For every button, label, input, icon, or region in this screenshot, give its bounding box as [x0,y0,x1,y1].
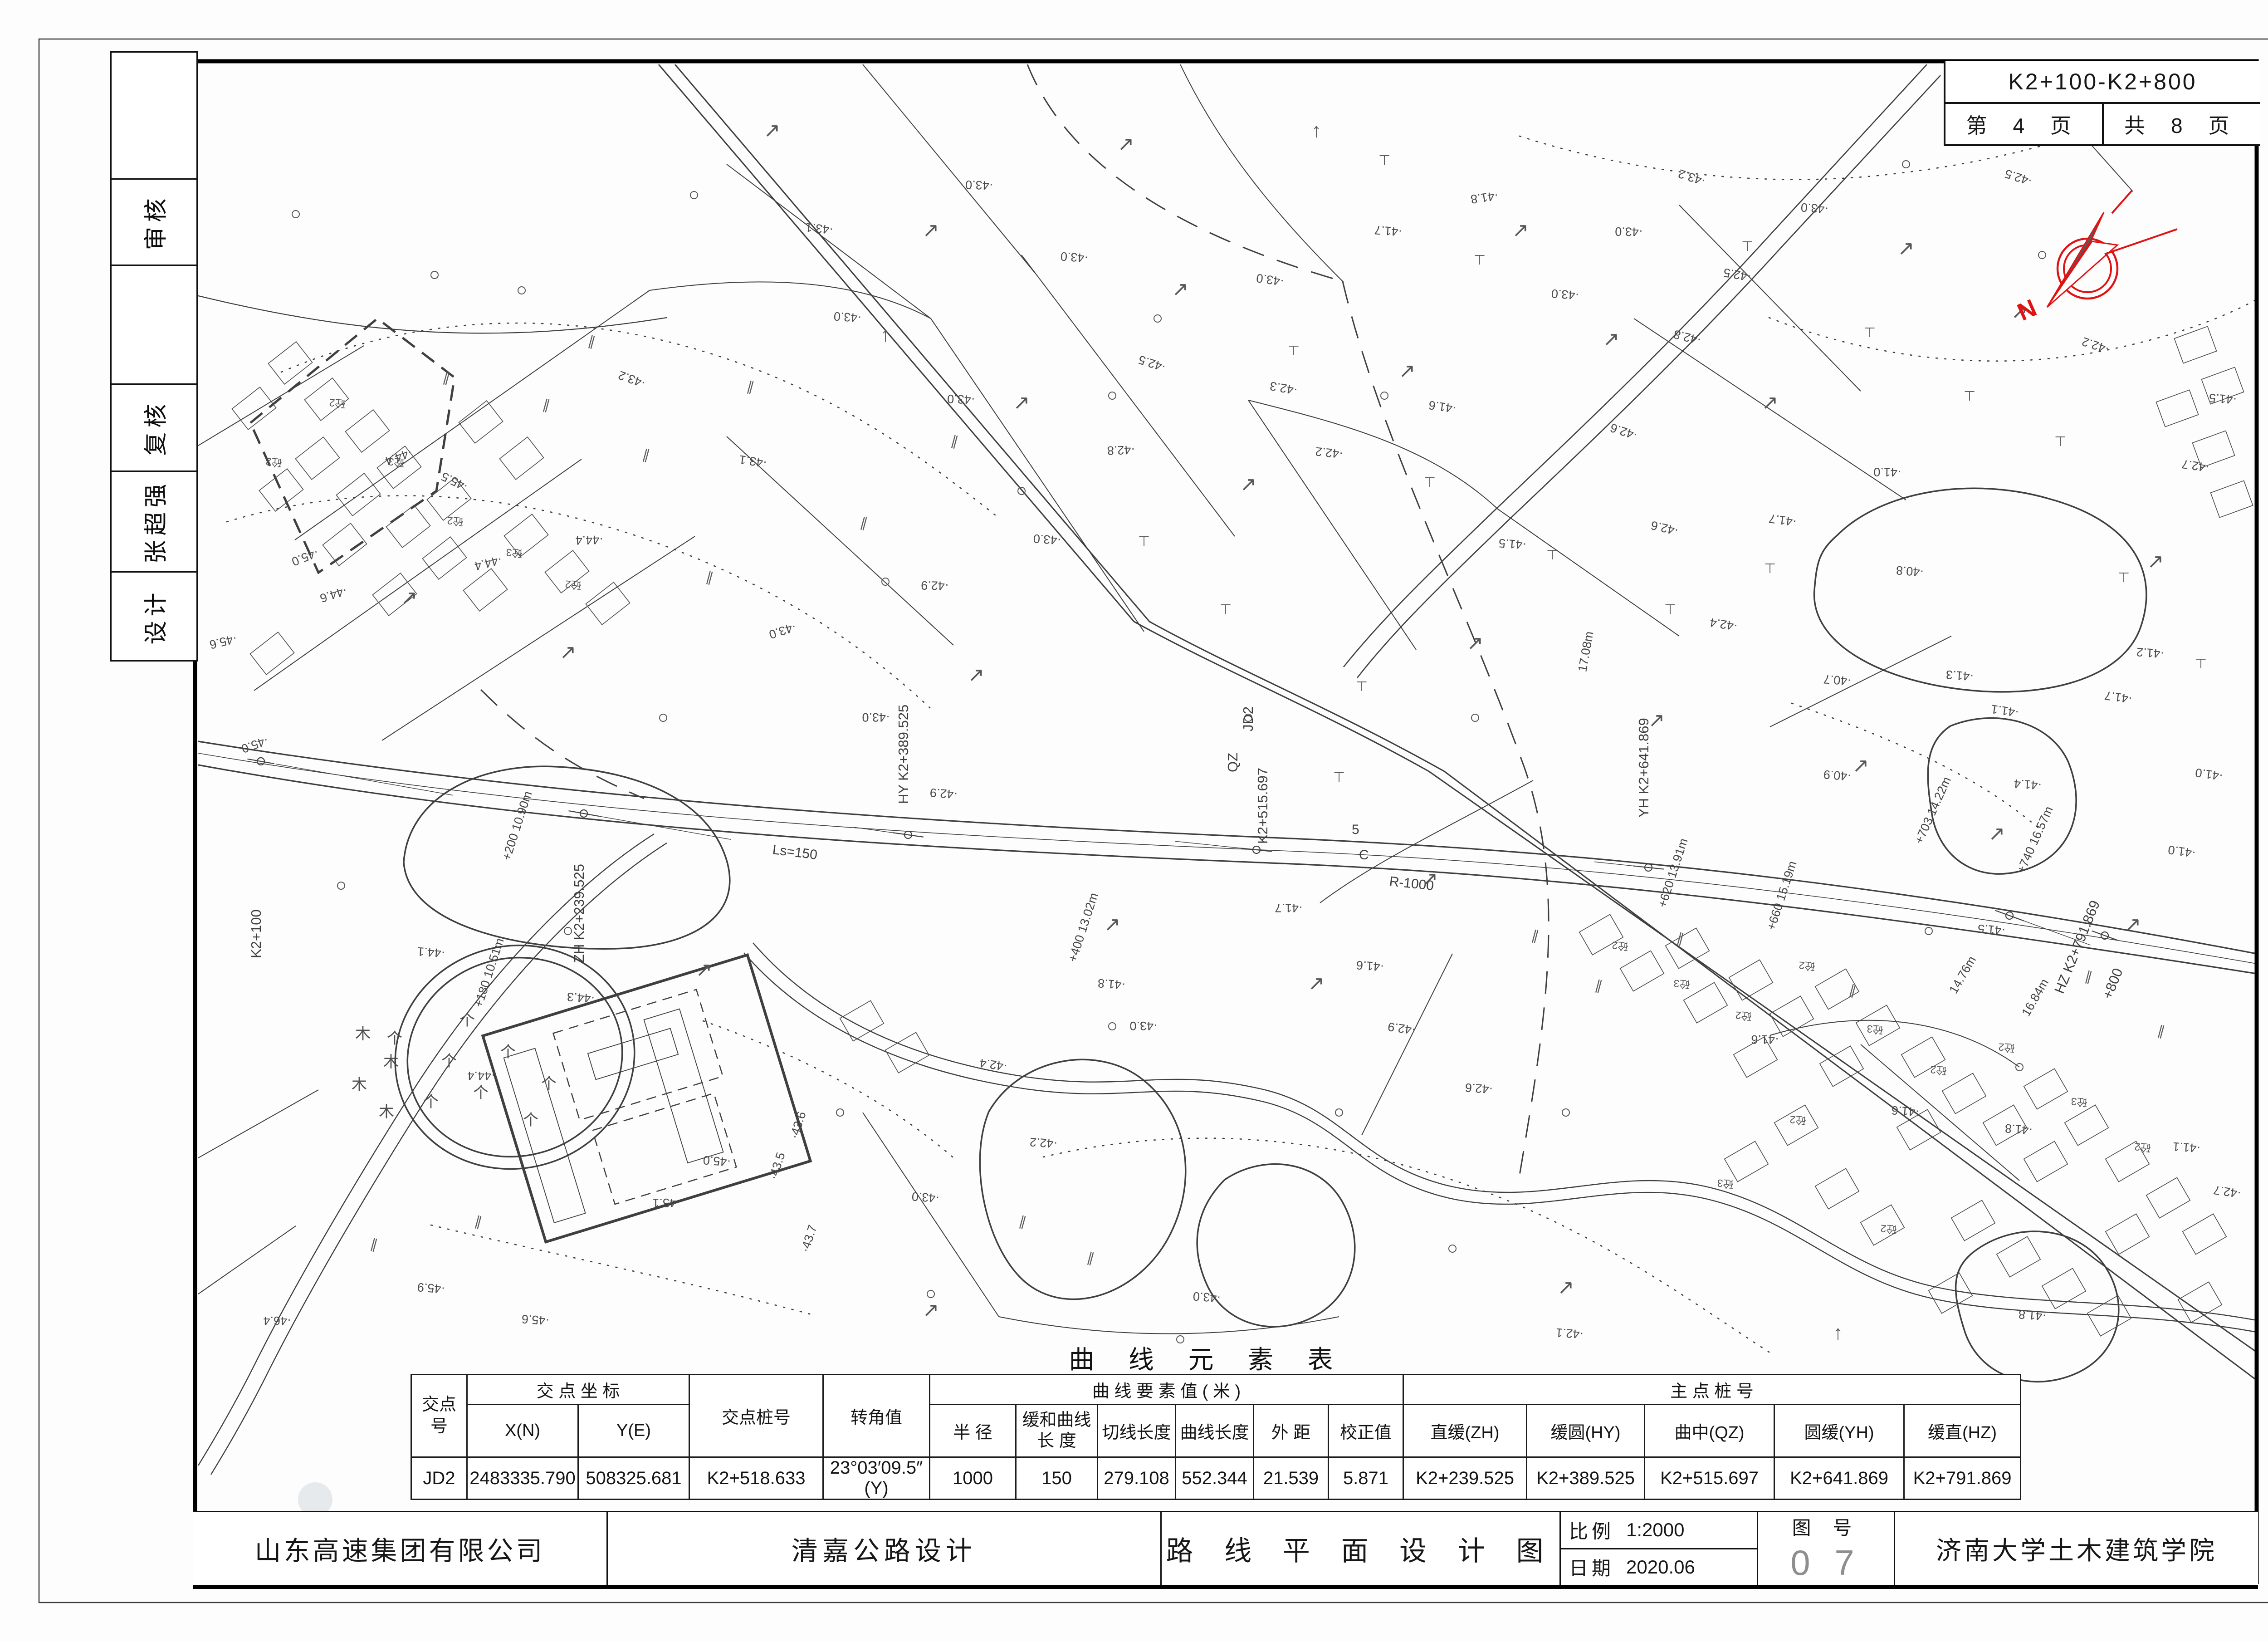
date-value: 2020.06 [1626,1556,1695,1578]
building [336,473,380,516]
direction-arrow-icon: ↗ [401,587,418,609]
grass-icon: ∥ [369,1236,379,1253]
building [2174,326,2216,363]
col-coords: 交 点 坐 标 [467,1375,689,1405]
page-total: 共 8 页 [2104,104,2260,144]
spot-elevation: ·42.7 [2181,457,2210,474]
strip-cell-sheji: 设计 [112,573,196,660]
spot-elevation: ·42.6 [1608,421,1639,442]
direction-arrow-icon: ↗ [1399,360,1416,382]
point-circle-icon [882,578,889,585]
wood-icon: 木 [379,1103,394,1121]
building [2106,1214,2150,1254]
spot-elevation: ·45.5 [439,470,470,494]
spot-elevation: ·41.0 [2195,765,2224,783]
spot-elevation: ·43.7 [798,1223,820,1254]
building-label: 砼2 [1612,940,1629,952]
point-circle-icon [292,211,299,218]
spot-elevation: ·45.6 [208,632,239,652]
spot-elevation: ·41.3 [1945,668,1974,683]
building [2146,1177,2190,1218]
building [2065,1105,2109,1145]
col-main-stakes: 主 点 桩 号 [1403,1375,2021,1405]
cell-angle: 23°03′09.5″(Y) [823,1457,930,1500]
cell-spiral: 150 [1016,1457,1098,1500]
col-xn: X(N) [467,1405,578,1457]
point-circle-icon [836,1109,844,1116]
spot-elevation: ·43.1 [738,452,768,470]
col-ye: Y(E) [578,1405,689,1457]
field-boundaries [198,64,2133,1334]
grass-icon: ∥ [1530,928,1540,944]
cell-zh: K2+239.525 [1403,1457,1527,1500]
title-block: 山东高速集团有限公司 清嘉公路设计 路 线 平 面 设 计 图 比例 1:200… [193,1511,2258,1589]
spot-elevation: ·44.3 [567,990,595,1005]
grass-icon: ∥ [641,447,651,463]
building-label: 砼2 [1998,1041,2015,1054]
building [840,1000,884,1041]
cell-radius: 1000 [930,1457,1016,1500]
tree-icon: 个 [423,1093,439,1111]
label-design: 设计 [137,588,171,644]
building [345,410,389,452]
point-circle-icon [337,882,345,889]
vegetation-icon: ⊥ [1664,601,1676,616]
spot-elevation: ·46.4 [263,1314,291,1328]
spot-elevation: ·41.2 [2136,645,2165,661]
drawing-sheet: ·43.1·43.0·43.0·43.2·44.4·45.0·44.6·45.6… [0,0,2268,1642]
strip-cell-fuhe: 复核 [112,385,196,472]
spot-elevation: ·45.6 [521,1312,550,1328]
scale-label: 比例 [1569,1516,1614,1544]
tree-icon: 个 [473,1084,489,1102]
point-circle-icon [1449,1245,1456,1252]
spot-elevation: ·41.8 [2004,1122,2033,1137]
tree-icon: 个 [387,1030,402,1047]
grass-icon: ∥ [949,433,960,450]
building-label: 砼2 [1735,1010,1752,1022]
vegetation-icon: ⊥ [2195,656,2207,671]
spot-elevation: ·41.6 [1891,1103,1920,1119]
building-label: 砼2 [1789,1114,1807,1127]
organization-name: 济南大学土木建筑学院 [1895,1512,2258,1585]
col-hy: 缓圆(HY) [1527,1405,1645,1457]
spot-elevation: ·40.8 [1896,564,1924,579]
col-jd-no: 交点号 [411,1375,467,1457]
direction-arrow-icon: ↗ [560,641,577,663]
building-label: 砼2 [1930,1064,1947,1077]
vegetation-icon: ⊥ [1220,601,1232,616]
building-label: 砼3 [2071,1096,2088,1108]
spot-elevation: ·40.9 [1823,768,1852,783]
vegetation-icon: ⊥ [1764,560,1776,575]
grass-icon: ∥ [541,397,552,413]
signature-strip: 审核 复核 张超强 设计 [110,51,198,662]
vegetation-icon: ⊥ [1288,343,1300,358]
building [422,537,466,579]
spot-elevation: ·42.5 [1137,353,1168,374]
vegetation-icon: ⊥ [1546,547,1558,562]
route-note: C [1359,848,1369,863]
station-label: HY K2+389.525 [895,705,911,804]
tree-icon: 个 [523,1112,538,1129]
direction-arrow-icon: ↗ [1512,219,1529,241]
grass-icon: ∥ [2083,969,2094,985]
col-curve-len: 曲线长度 [1176,1405,1254,1457]
spot-elevation: ·41.6 [1356,958,1384,974]
label-recheck: 复核 [137,399,171,456]
spot-elevation: ·43.0 [911,1190,940,1205]
tree-icon: 个 [441,1053,457,1070]
building [459,401,503,443]
vegetation-icon: ⊥ [1964,388,1975,403]
building [2210,480,2253,517]
spot-elevation: ·41.6 [1428,398,1457,415]
vegetation-icon: ⊥ [2118,569,2130,584]
vegetation-icon: ⊥ [1741,238,1753,253]
spot-elevation: ·43.0 [1129,1019,1158,1033]
strip-cell-shenhe: 审核 [112,180,196,266]
building [1815,1168,1859,1209]
grass-icon: ∥ [1675,931,1686,947]
spot-elevation: ·42.6 [1650,518,1680,538]
direction-arrow-icon: ↗ [1558,1276,1574,1299]
spot-elevation: ·44.4 [575,533,604,547]
grass-icon: ∥ [1085,1250,1096,1266]
grass-icon: ∥ [859,515,869,531]
spot-elevation: ·41.0 [2167,843,2197,860]
spot-elevation: ·41.5 [2209,391,2237,407]
spot-elevation: ·43.0 [1256,271,1285,288]
spot-elevation: ·42.5 [2003,167,2034,188]
building [232,387,276,430]
direction-arrow-icon: ↗ [1989,823,2005,845]
curve-table-title: 曲 线 元 素 表 [411,1339,2005,1376]
col-spiral-line2: 长 度 [1037,1431,1076,1451]
point-circle-icon [1335,1109,1343,1116]
spot-elevation: ·43.0 [767,620,798,642]
spot-elevation: ·43.0 [1551,287,1579,302]
spot-elevation: ·43.0 [1193,1289,1221,1305]
col-zh: 直缓(ZH) [1403,1405,1527,1457]
spot-elevation: ·41.7 [1275,901,1303,915]
ponds [404,488,2146,1382]
cell-correction: 5.871 [1329,1457,1403,1500]
building-label: 砼2 [565,578,582,591]
curve-table: 交点号 交 点 坐 标 交点桩号 转角值 曲 线 要 素 值 ( 米 ) 主 点… [411,1374,2021,1500]
building [1942,1073,1986,1113]
station-label: K2+515.697 [1255,768,1271,844]
building-label: 砼2 [329,397,346,410]
point-circle-icon [431,271,438,279]
scale-value: 1:2000 [1626,1519,1684,1541]
building [1725,1141,1769,1181]
culvert-label: +660 15.19m [1764,859,1799,932]
spot-elevation: ·42.2 [2080,334,2111,356]
point-circle-icon [690,191,698,199]
table-row: JD2 2483335.790 508325.681 K2+518.633 23… [411,1457,2021,1500]
spot-elevation: ·43.0 [862,711,890,724]
grass-icon: ∥ [587,333,597,350]
point-circle-icon [1109,392,1116,399]
project-name: 清嘉公路设计 [608,1512,1162,1585]
spot-elevation: ·44.4 [467,1069,495,1083]
station-label: QZ [1225,753,1241,772]
spot-elevation: ·41.8 [1097,976,1126,992]
scale-date-cell: 比例 1:2000 日期 2020.06 [1561,1512,1758,1585]
direction-arrow-icon: ↗ [923,1299,939,1321]
spot-elevation: ·44.6 [318,583,349,605]
direction-arrow-icon: ↗ [1422,868,1438,890]
col-angle: 转角值 [823,1375,930,1457]
spot-elevation: ·44.4 [473,553,503,573]
culvert-label: 17.08m [1575,630,1596,673]
north-compass-icon [2047,191,2177,307]
building-label: 砼2 [447,515,464,528]
label-designer-name: 张超强 [137,479,171,564]
figure-number-label: 图 号 [1758,1512,1894,1540]
direction-arrow-icon: ↑ [880,323,890,346]
point-circle-icon [564,927,572,935]
route-note: Ls=150 [772,842,818,863]
point-circle-icon [2038,251,2046,259]
vegetation-icon: ⊥ [1333,769,1345,784]
col-tangent: 切线长度 [1098,1405,1176,1457]
date-label: 日期 [1569,1553,1614,1581]
wood-icon: 木 [352,1076,367,1093]
figure-number-value: 0 7 [1758,1540,1894,1585]
road-b [1344,64,1941,678]
col-qz: 曲中(QZ) [1645,1405,1774,1457]
direction-arrow-icon: ↗ [1898,237,1915,260]
direction-arrow-icon: ↗ [1762,392,1779,414]
grass-icon: ∥ [745,379,756,395]
tree-icon: 个 [500,1044,516,1061]
spot-elevation: ·43.5 [766,1151,788,1181]
spot-elevation: ·42.1 [1555,1326,1584,1341]
cell-ye: 508325.681 [578,1457,689,1500]
col-hz: 缓直(HZ) [1904,1405,2021,1457]
spot-elevation: ·42.2 [1029,1135,1058,1151]
spot-elevation: ·43.0 [1615,225,1643,239]
point-circle-icon [927,1290,934,1298]
spot-elevation: ·41.4 [2014,777,2042,792]
building [1620,951,1664,991]
building [1929,1273,1973,1313]
building [2024,1069,2068,1109]
building [2024,1141,2068,1181]
building [250,632,294,675]
tree-icon: 个 [459,1012,475,1029]
building [386,505,430,548]
vegetation-icon: ⊥ [1424,474,1436,489]
date-row: 日期 2020.06 [1561,1549,1757,1585]
building-label: 砼3 [1867,1023,1884,1036]
strip-cell-blank-1 [112,53,196,180]
direction-arrow-icon: ↗ [1308,972,1325,995]
spot-elevation: ·43.0 [833,309,862,325]
direction-arrow-icon: ↗ [2147,550,2164,573]
building [2183,1214,2227,1254]
cell-yh: K2+641.869 [1774,1457,1904,1500]
spot-elevation: ·43.0 [1800,201,1829,216]
building [259,469,303,511]
building-label: 砼3 [1673,978,1691,990]
map-labels: ·43.1·43.0·43.0·43.2·44.4·45.0·44.6·45.6… [208,107,2242,1344]
point-circle-icon [1109,1023,1116,1030]
spot-elevation: ·45.1 [652,1196,680,1210]
col-external: 外 距 [1254,1405,1329,1457]
building [1729,960,1773,1000]
cell-hz: K2+791.869 [1904,1457,2021,1500]
spot-elevation: ·45.9 [417,1280,445,1296]
spot-elevation: ·45.0 [703,1153,731,1169]
station-label: JD2 [1240,706,1256,731]
building [1997,1236,2041,1277]
spot-elevation: ·42.9 [1387,1020,1417,1037]
cell-qz: K2+515.697 [1645,1457,1774,1500]
drawing-title: 路 线 平 面 设 计 图 [1162,1512,1561,1585]
spot-elevation: ·41.7 [2104,688,2133,706]
vegetation-icon: ⊥ [2054,433,2066,448]
grass-icon: ∥ [704,569,715,586]
culvert-label: +703 14.22m [1912,775,1954,846]
direction-arrow-icon: ↗ [696,959,713,981]
point-circle-icon [660,714,667,721]
col-spiral: 缓和曲线 长 度 [1016,1405,1098,1457]
culvert-label: +620 13.91m [1655,837,1690,909]
direction-arrow-icon: ↗ [1603,328,1620,350]
station-label: K2+100 [248,909,264,958]
point-circle-icon [1471,714,1479,721]
wood-icon: 木 [355,1025,371,1043]
direction-arrow-icon: ↗ [764,119,781,142]
direction-arrow-icon: ↗ [923,219,939,241]
direction-arrow-icon: ↗ [1172,278,1189,300]
grass-icon: ∥ [1848,982,1858,999]
vegetation-icon: ⊥ [1138,533,1150,548]
curve-elements-table: 交点号 交 点 坐 标 交点桩号 转角值 曲 线 要 素 值 ( 米 ) 主 点… [411,1374,2021,1500]
direction-arrow-icon: ↗ [1467,632,1484,654]
point-circle-icon [1381,392,1388,399]
cell-tangent: 279.108 [1098,1457,1176,1500]
spot-elevation: ·41.1 [1990,702,2020,719]
cell-curve-len: 552.344 [1176,1457,1254,1500]
grass-icon: ∥ [1593,978,1604,994]
building-label: 砼3 [506,547,523,559]
figure-number-cell: 图 号 0 7 [1758,1512,1895,1585]
spot-elevation: ·42.8 [1107,443,1135,457]
direction-arrow-icon: ↗ [968,664,985,686]
culvert-label: +740 16.57m [2014,804,2056,876]
vegetation-icon: ⊥ [1474,252,1486,267]
spot-elevation: ·44.1 [417,945,445,960]
vegetation-icon: ⊥ [1864,324,1876,339]
building-label: 砼2 [1880,1223,1897,1235]
spot-elevation: ·41.5 [1498,536,1527,552]
spot-elevation: ·42.9 [921,578,949,593]
culvert-label: 14.76m [1946,954,1979,996]
spot-elevation: ·42.9 [929,786,958,801]
spot-elevation: ·41.5 [1977,922,2006,937]
building [1951,1200,1995,1240]
spot-elevation: ·41.1 [2172,1140,2201,1155]
building-label: 砼2 [265,456,283,469]
spot-elevation: ·42.4 [1709,615,1738,633]
direction-arrow-icon: ↗ [1013,392,1030,414]
page-current: 第 4 页 [1945,104,2104,144]
spot-elevation: ·42.6 [1465,1081,1493,1096]
vegetation-icon: ⊥ [1378,152,1390,167]
point-circle-icon [1018,487,1025,495]
building-label: 砼2 [2134,1141,2151,1154]
point-circle-icon [518,287,525,294]
spot-elevation: ·43.6 [787,1110,809,1141]
spot-elevation: ·41.6 [1751,1033,1779,1046]
tree-icon: 个 [541,1075,557,1093]
grass-icon: ∥ [2156,1023,2166,1039]
spot-elevation: ·43.2 [1677,167,1707,188]
cell-hy: K2+389.525 [1527,1457,1645,1500]
col-stake: 交点桩号 [689,1375,823,1457]
point-circle-icon [1562,1109,1569,1116]
grass-icon: ∥ [473,1214,484,1230]
map-symbols [292,161,2046,1343]
cell-xn: 2483335.790 [467,1457,578,1500]
strip-cell-name: 张超强 [112,472,196,573]
direction-arrow-icon: ↗ [1104,913,1121,936]
spot-elevation: ·41.7 [1768,511,1798,529]
building [1666,928,1710,968]
building [268,342,312,384]
strip-cell-blank-2 [112,266,196,385]
point-circle-icon [1154,315,1161,322]
wood-icon: 木 [383,1054,399,1071]
cell-jd: JD2 [411,1457,467,1500]
route-note: 5 [1352,822,1359,837]
spot-elevation: ·41.8 [1470,189,1499,206]
building [499,437,543,480]
point-circle-icon [1902,161,1910,168]
building-label: 砼2 [1799,960,1816,972]
building [1684,982,1728,1023]
culvert-label: +180 10.51m [471,936,506,1009]
scale-row: 比例 1:2000 [1561,1512,1757,1549]
direction-arrow-icon: ↗ [1118,133,1134,155]
spot-elevation: ·41.7 [1374,223,1403,239]
building [1770,996,1814,1036]
page-box: K2+100-K2+800 第 4 页 共 8 页 [1944,61,2260,146]
culvert-label: +200 10.90m [499,789,534,862]
col-curve-values: 曲 线 要 素 值 ( 米 ) [930,1375,1403,1405]
direction-arrow-icon: ↗ [1648,709,1665,731]
culvert-label: 16.84m [2019,976,2051,1019]
col-spiral-line1: 缓和曲线 [1022,1411,1091,1430]
spot-elevation: ·43.0 [965,178,994,192]
company-name: 山东高速集团有限公司 [193,1512,608,1585]
spot-elevation: ·43.1 [805,221,834,237]
compound [483,955,810,1242]
spot-elevation: ·43.2 [616,368,647,390]
spot-elevation: ·43.0 [1060,250,1089,265]
spot-elevation: ·41.0 [1873,465,1901,479]
station-label: HZ K2+791.869 [2051,898,2103,995]
station-label: YH K2+641.869 [1636,718,1652,818]
building-label: 砼3 [1717,1177,1734,1190]
spot-elevation: ·41.8 [2018,1308,2047,1323]
vegetation-icon: ⊥ [1356,678,1368,693]
spot-elevation: ·42.2 [1315,445,1344,461]
